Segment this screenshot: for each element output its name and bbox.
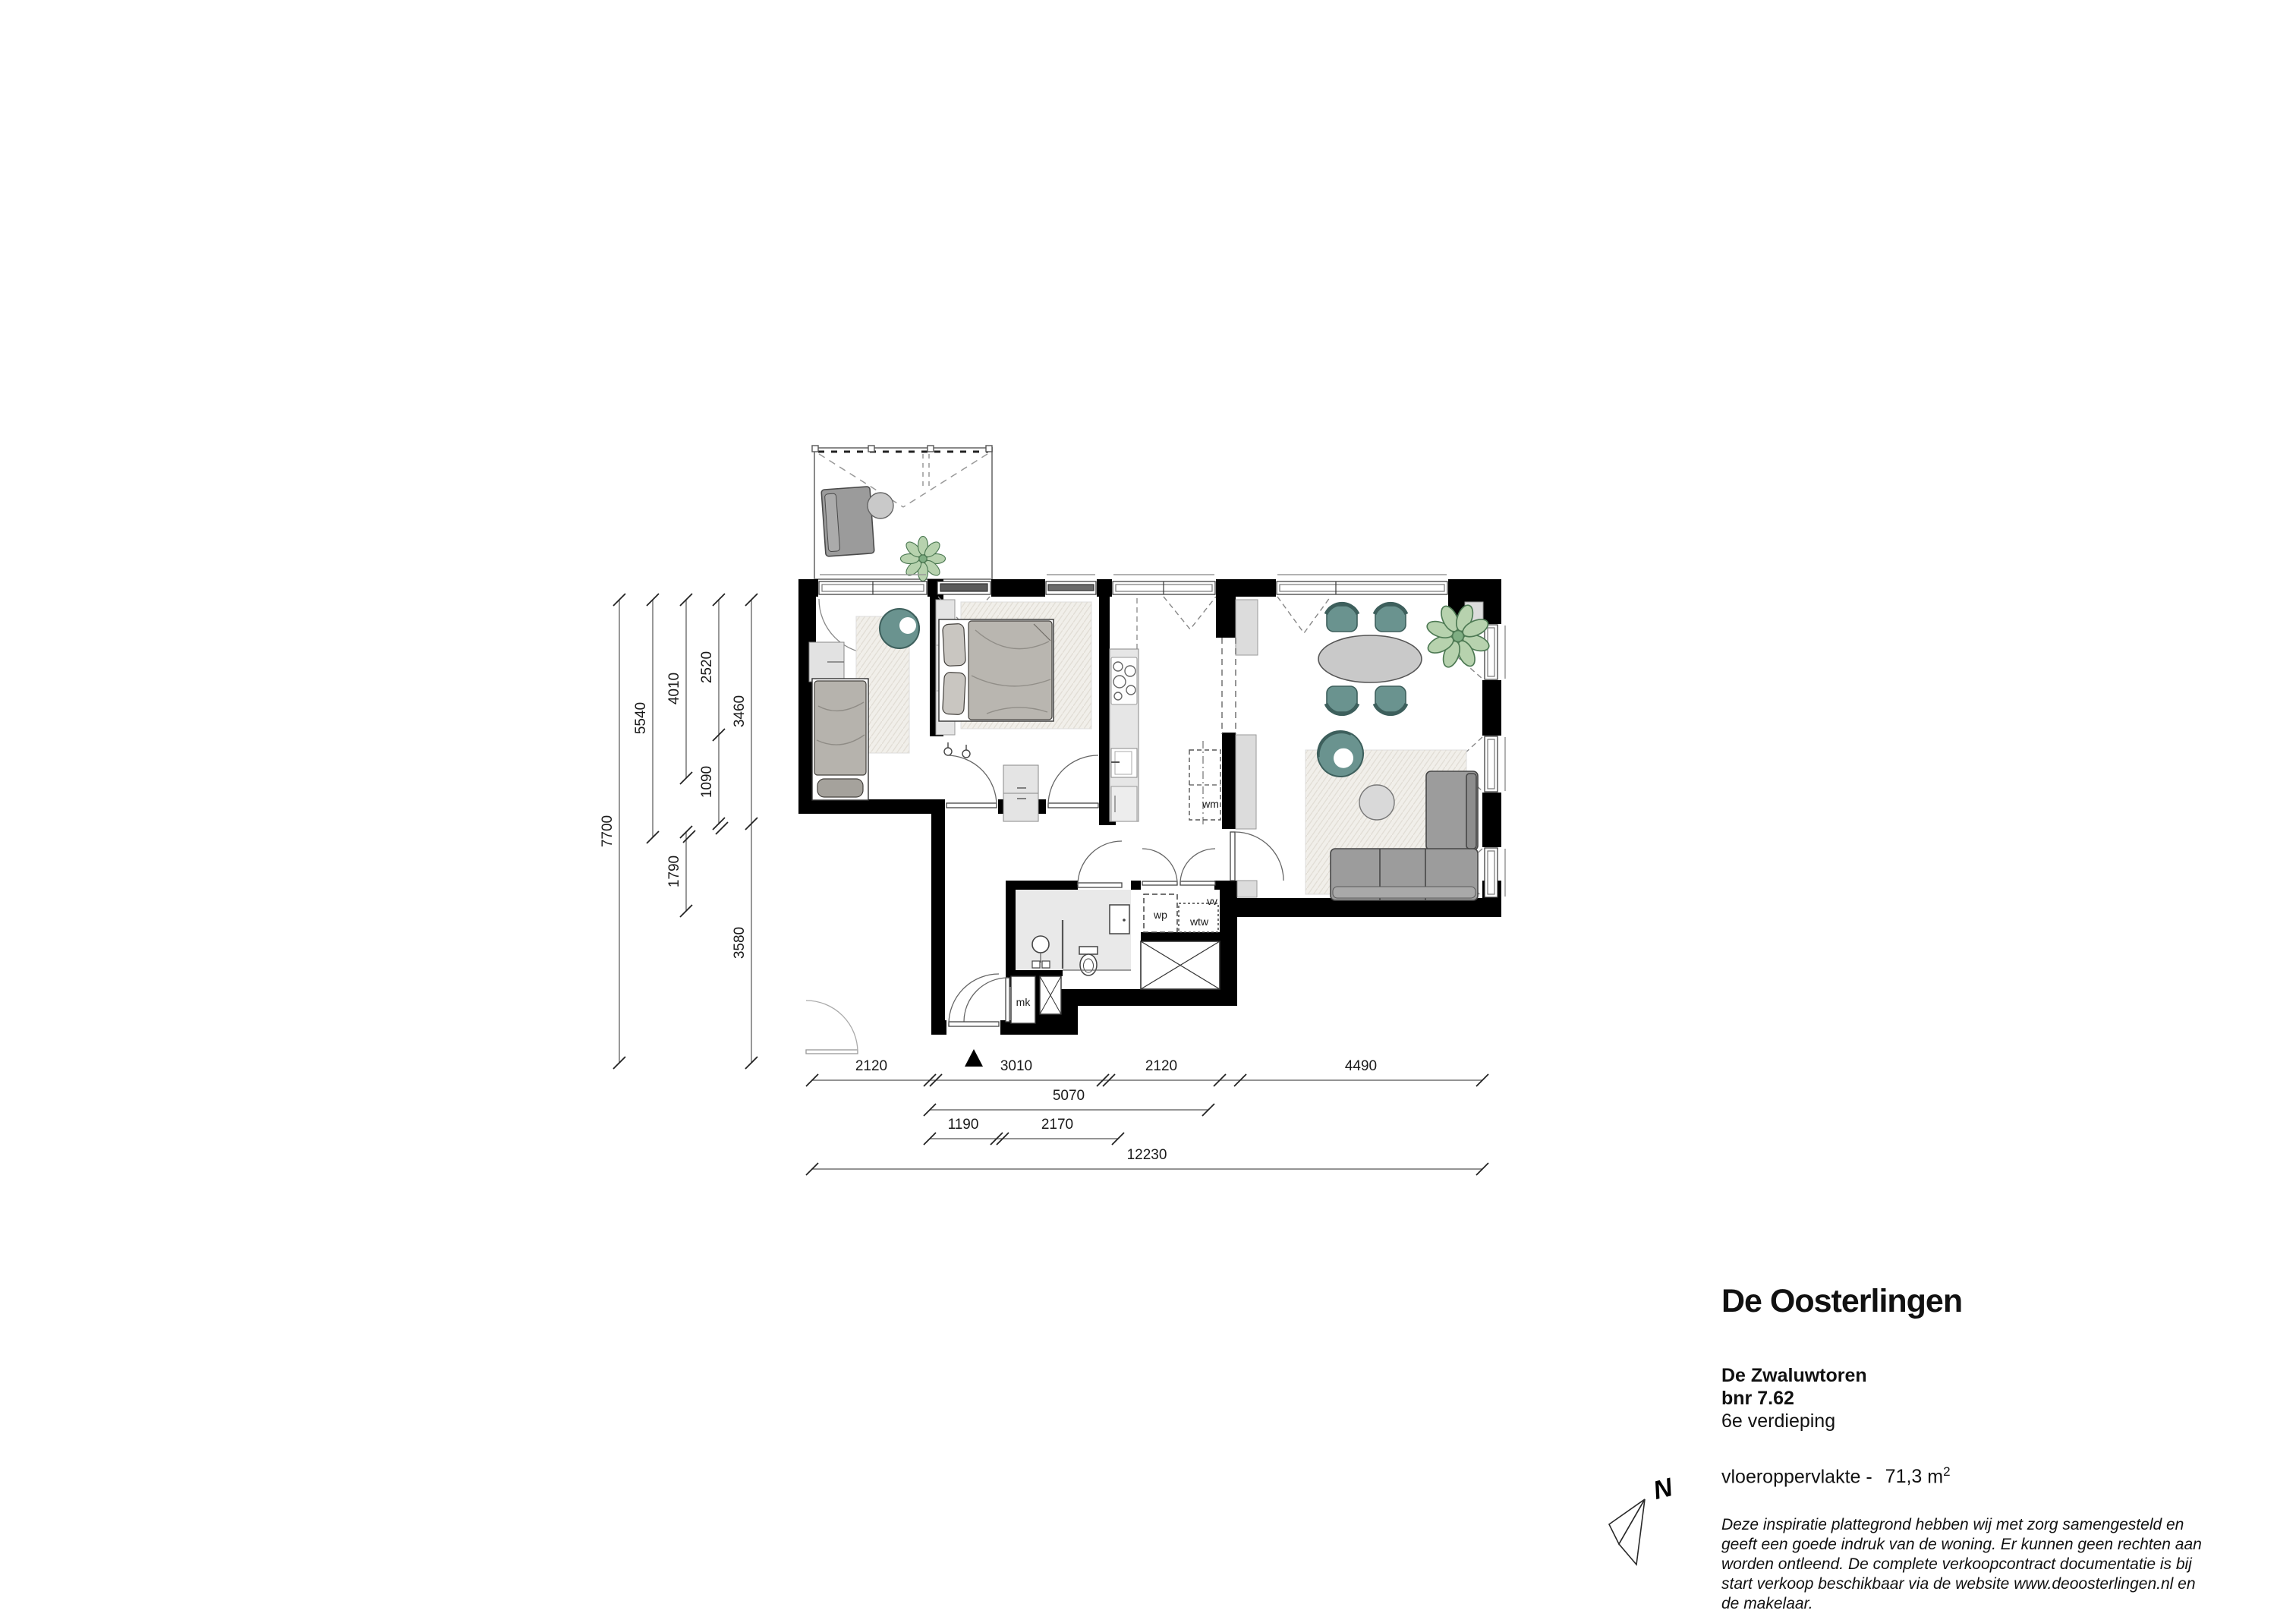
building-name: De Zwaluwtoren (1721, 1364, 2207, 1387)
window-living-right-3 (1485, 848, 1498, 897)
label-wm: wm (1202, 798, 1219, 810)
floor-area: vloeroppervlakte - 71,3 m2 (1721, 1464, 2207, 1488)
dim-bottom-5070: 5070 (1053, 1088, 1085, 1104)
dim-bottom-3010: 3010 (1000, 1058, 1032, 1074)
disclaimer: Deze inspiratie plattegrond hebben wij m… (1721, 1515, 2207, 1614)
toilet (1079, 947, 1098, 975)
bedroom-2 (936, 600, 1091, 821)
dining-table (1318, 635, 1422, 682)
floor-label: 6e verdieping (1721, 1410, 2207, 1432)
area-unit: m (1927, 1466, 1943, 1487)
bathroom-cabinet (1110, 905, 1129, 934)
disclaimer-line: geeft een goede indruk van de woning. Er… (1721, 1535, 2207, 1555)
dim-left-4010: 4010 (666, 673, 682, 704)
dim-left-3460: 3460 (732, 695, 748, 727)
dining-chair (1326, 604, 1358, 632)
title-block: De Oosterlingen De Zwaluwtoren bnr 7.62 … (1721, 1283, 2207, 1614)
dim-bottom-1190: 1190 (948, 1117, 979, 1133)
bedroom1-bed (812, 679, 868, 800)
entrance-marker (965, 1049, 983, 1067)
dining-chair (1375, 686, 1406, 714)
dim-left-1790: 1790 (666, 856, 682, 887)
dim-bottom-2120a: 2120 (855, 1058, 887, 1074)
project-title: De Oosterlingen (1721, 1283, 2207, 1320)
balcony-side-table (868, 493, 893, 518)
area-value: 71,3 (1885, 1466, 1923, 1487)
dim-bottom-2120b: 2120 (1145, 1058, 1177, 1074)
area-unit-sup: 2 (1943, 1464, 1950, 1479)
unit-number: bnr 7.62 (1721, 1387, 2207, 1410)
bedroom-1 (809, 609, 919, 800)
window-living-top (1277, 581, 1447, 594)
dim-left-5540: 5540 (633, 702, 649, 734)
side-table (1359, 785, 1394, 820)
dim-bottom-12230: 12230 (1127, 1147, 1167, 1163)
living-room (1305, 594, 1500, 900)
dim-bottom-2170: 2170 (1041, 1117, 1073, 1133)
bedroom1-armchair (880, 609, 919, 648)
disclaimer-line: worden ontleend. De complete verkoopcont… (1721, 1555, 2207, 1574)
label-vv: vv (1207, 895, 1217, 907)
north-arrow: N (1609, 1473, 1677, 1565)
north-label: N (1650, 1473, 1676, 1505)
dim-left-7700: 7700 (600, 815, 616, 847)
balcony (812, 446, 992, 581)
bedroom2-bed (939, 619, 1054, 721)
dining-chair (1375, 604, 1406, 632)
dimension-ticks (613, 594, 757, 1069)
window-living-right-2 (1485, 736, 1498, 792)
disclaimer-line: start verkoop beschikbaar via de website… (1721, 1574, 2207, 1594)
dim-left-1090: 1090 (699, 766, 715, 798)
dining-chair (1326, 686, 1358, 714)
label-wtw: wtw (1189, 915, 1209, 928)
dim-bottom-4490: 4490 (1345, 1058, 1377, 1074)
floorplan-page: wm (0, 0, 2296, 1623)
area-label: vloeroppervlakte - (1721, 1466, 1872, 1487)
label-mk: mk (1016, 996, 1031, 1008)
dim-left-2520: 2520 (699, 651, 715, 683)
disclaimer-line: Deze inspiratie plattegrond hebben wij m… (1721, 1515, 2207, 1535)
dim-left-3580: 3580 (732, 927, 748, 959)
window-living-right-1 (1485, 625, 1498, 679)
disclaimer-line: de makelaar. (1721, 1594, 2207, 1614)
bathroom (1016, 890, 1131, 975)
balcony-sofa (821, 487, 874, 556)
label-wp: wp (1153, 909, 1167, 921)
